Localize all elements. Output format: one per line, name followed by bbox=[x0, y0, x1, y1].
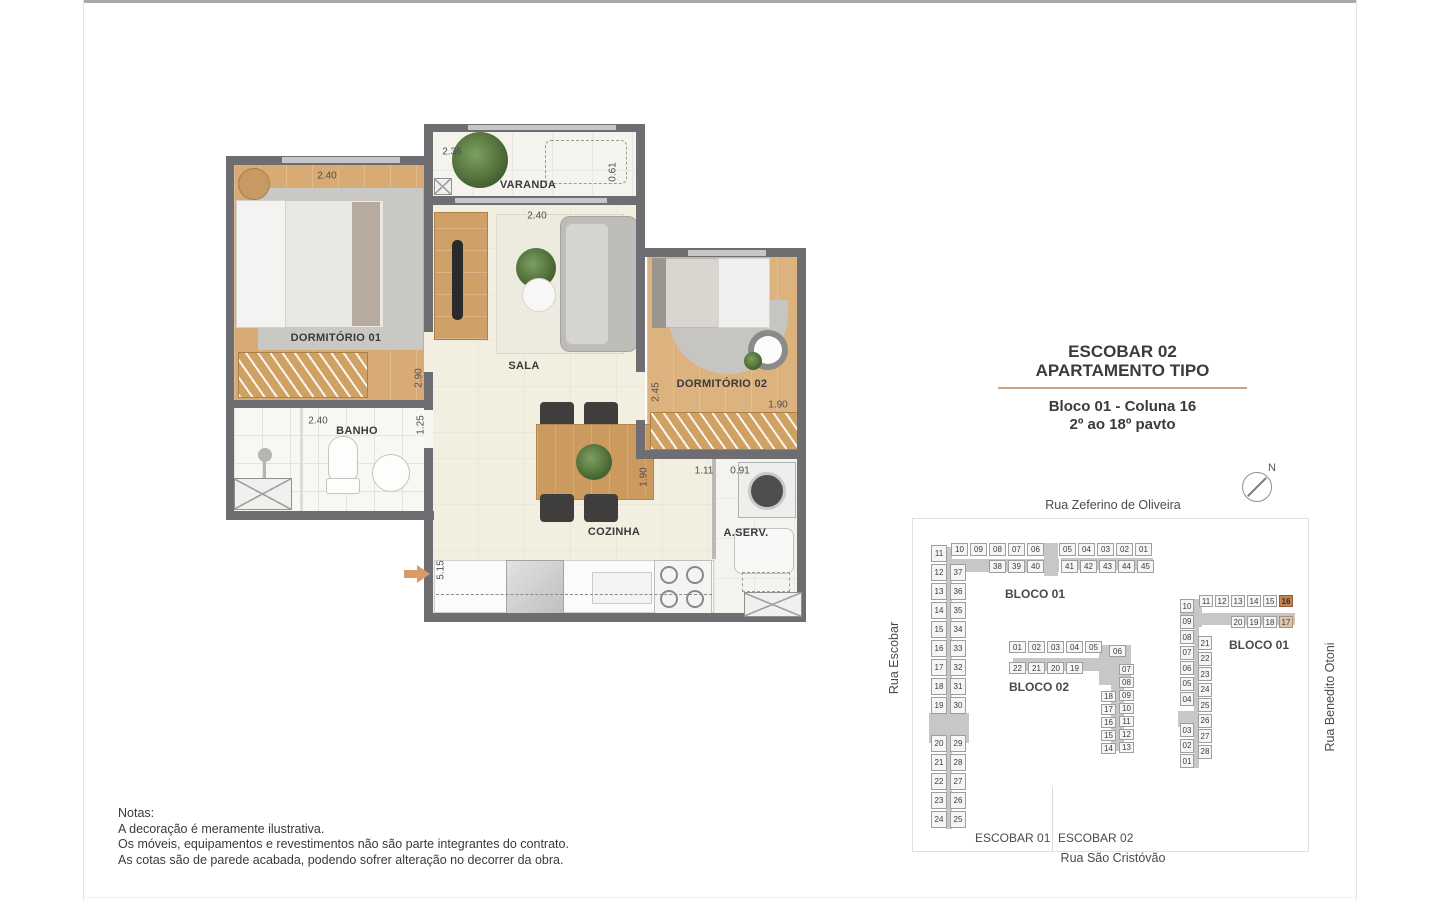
dim-cozinha-width: 1.11 bbox=[695, 466, 714, 477]
unit-20: 20 bbox=[1231, 616, 1245, 628]
dim-dorm2-height: 2.45 bbox=[651, 382, 662, 401]
dim-varanda-depth: 0.61 bbox=[608, 162, 619, 181]
unit-row: 1009080706 bbox=[951, 543, 1044, 556]
unit-24: 24 bbox=[1198, 683, 1212, 697]
unit-14: 14 bbox=[931, 602, 947, 619]
unit-12: 12 bbox=[1215, 595, 1229, 607]
unit-15: 15 bbox=[931, 621, 947, 638]
unit-11: 11 bbox=[931, 545, 947, 562]
unit-30: 30 bbox=[950, 697, 966, 714]
unit-25: 25 bbox=[1198, 698, 1212, 712]
unit-20: 20 bbox=[1047, 662, 1064, 674]
notes-line: Os móveis, equipamentos e revestimentos … bbox=[118, 837, 569, 853]
unit-01: 01 bbox=[1180, 754, 1194, 768]
floors-info: 2º ao 18º pavto bbox=[960, 416, 1285, 434]
dorm2-plant bbox=[744, 352, 762, 370]
unit-41: 41 bbox=[1061, 560, 1078, 573]
shower-divider bbox=[300, 407, 303, 513]
unit-09: 09 bbox=[1180, 615, 1194, 629]
title-block: ESCOBAR 02 APARTAMENTO TIPO Bloco 01 - C… bbox=[960, 342, 1285, 434]
unit-22: 22 bbox=[1009, 662, 1026, 674]
dining-plant bbox=[576, 444, 612, 480]
unit-row: 22212019 bbox=[1009, 662, 1083, 674]
unit-row: 383940 bbox=[989, 560, 1044, 573]
notes-heading: Notas: bbox=[118, 806, 569, 822]
dining-chair-4 bbox=[584, 494, 618, 522]
notes-line: A decoração é meramente ilustrativa. bbox=[118, 822, 569, 838]
unit-03: 03 bbox=[1180, 723, 1194, 737]
unit-09: 09 bbox=[970, 543, 987, 556]
unit-45: 45 bbox=[1137, 560, 1154, 573]
cozinha-label: COZINHA bbox=[588, 526, 640, 538]
unit-20: 20 bbox=[931, 735, 947, 752]
street-left: Rua Escobar bbox=[887, 622, 901, 694]
unit-05: 05 bbox=[1059, 543, 1076, 556]
wall bbox=[226, 156, 234, 520]
unit-07: 07 bbox=[1180, 646, 1194, 660]
unit-03: 03 bbox=[1047, 641, 1064, 653]
kitchen-sink bbox=[592, 572, 652, 604]
unit-31: 31 bbox=[950, 678, 966, 695]
unit-07: 07 bbox=[1119, 664, 1134, 675]
unit-32: 32 bbox=[950, 659, 966, 676]
dorm1-pillows bbox=[236, 200, 286, 328]
shaft-banho bbox=[234, 478, 292, 510]
unit-17: 17 bbox=[1101, 704, 1116, 715]
title-divider bbox=[998, 387, 1247, 389]
unit-row: 0102030405 bbox=[1009, 641, 1102, 653]
unit-19: 19 bbox=[931, 697, 947, 714]
blocoA-label: BLOCO 01 bbox=[1005, 587, 1065, 601]
unit-28: 28 bbox=[950, 754, 966, 771]
unit-column: 07080910111213 bbox=[1119, 664, 1134, 753]
lot-boundary bbox=[1052, 787, 1053, 851]
sala-slider-window bbox=[455, 198, 607, 203]
dim-aserv-width: 0.91 bbox=[730, 466, 749, 477]
unit-17: 17 bbox=[931, 659, 947, 676]
aserv-label: A.SERV. bbox=[724, 527, 769, 539]
unit-06: 06 bbox=[1027, 543, 1044, 556]
unit-23: 23 bbox=[1198, 667, 1212, 681]
sala-label: SALA bbox=[508, 360, 539, 372]
stair-core bbox=[1044, 543, 1058, 576]
dorm1-door-opening bbox=[424, 332, 433, 372]
unit-row: 20191817 bbox=[1231, 616, 1293, 628]
dorm2-window bbox=[688, 250, 766, 256]
dorm1-wardrobe bbox=[238, 352, 368, 398]
unit-16: 16 bbox=[1279, 595, 1293, 607]
unit-14: 14 bbox=[1247, 595, 1261, 607]
entrance-arrow-tip bbox=[417, 565, 430, 583]
dim-dorm1-width: 2.40 bbox=[317, 171, 336, 182]
dorm1-blanket bbox=[352, 202, 380, 326]
aserv-dashed-box bbox=[742, 572, 790, 592]
unit-39: 39 bbox=[1008, 560, 1025, 573]
page: DORMITÓRIO 01 BANHO VARANDA SALA DORMITÓ… bbox=[0, 0, 1440, 900]
varanda-label: VARANDA bbox=[500, 179, 556, 191]
unit-18: 18 bbox=[1101, 691, 1116, 702]
sala-sofa-seats bbox=[566, 224, 608, 344]
unit-08: 08 bbox=[1180, 630, 1194, 644]
unit-04: 04 bbox=[1066, 641, 1083, 653]
unit-row: 4142434445 bbox=[1061, 560, 1154, 573]
unit-09: 09 bbox=[1119, 690, 1134, 701]
dorm2-headfoot bbox=[652, 258, 666, 328]
entrance-arrow bbox=[404, 570, 417, 578]
blocoB-label: BLOCO 02 bbox=[1009, 680, 1069, 694]
dorm1-side-table bbox=[238, 168, 270, 200]
unit-05: 05 bbox=[1180, 677, 1194, 691]
dorm1-window bbox=[282, 157, 400, 163]
unit-21: 21 bbox=[931, 754, 947, 771]
unit-15: 15 bbox=[1263, 595, 1277, 607]
dim-dorm2-width: 1.90 bbox=[768, 400, 787, 411]
unit-14: 14 bbox=[1101, 743, 1116, 754]
dim-dorm1-height: 2.90 bbox=[414, 368, 425, 387]
unit-column: 1112131415161718192021222324 bbox=[931, 545, 947, 828]
unit-column: 1817161514 bbox=[1101, 691, 1116, 754]
unit-04: 04 bbox=[1078, 543, 1095, 556]
unit-42: 42 bbox=[1080, 560, 1097, 573]
unit-10: 10 bbox=[1119, 703, 1134, 714]
dining-chair-3 bbox=[540, 494, 574, 522]
unit-19: 19 bbox=[1247, 616, 1261, 628]
dim-varanda-width: 2.36 bbox=[442, 147, 461, 158]
unit-34: 34 bbox=[950, 621, 966, 638]
unit-26: 26 bbox=[950, 792, 966, 809]
unit-36: 36 bbox=[950, 583, 966, 600]
banho-label: BANHO bbox=[336, 425, 378, 437]
unit-23: 23 bbox=[931, 792, 947, 809]
unit-35: 35 bbox=[950, 602, 966, 619]
kitchen-fridge bbox=[506, 560, 564, 616]
unit-44: 44 bbox=[1118, 560, 1135, 573]
unit-15: 15 bbox=[1101, 730, 1116, 741]
dorm2-wardrobe bbox=[650, 412, 798, 450]
unit-12: 12 bbox=[931, 564, 947, 581]
unit-05: 05 bbox=[1085, 641, 1102, 653]
dim-cozinha-length: 5.15 bbox=[436, 560, 447, 579]
unit-11: 11 bbox=[1119, 716, 1134, 727]
unit-17: 17 bbox=[1279, 616, 1293, 628]
compass-north-label: N bbox=[1268, 462, 1276, 474]
unit-38: 38 bbox=[989, 560, 1006, 573]
unit-column: 2122232425262728 bbox=[1198, 636, 1212, 759]
wall bbox=[226, 400, 430, 408]
unit-08: 08 bbox=[1119, 677, 1134, 688]
dim-banho-width: 2.40 bbox=[308, 416, 327, 427]
unit-02: 02 bbox=[1116, 543, 1133, 556]
stove-burner-4 bbox=[686, 590, 704, 608]
unit-16: 16 bbox=[931, 640, 947, 657]
wall bbox=[226, 511, 434, 520]
unit-18: 18 bbox=[931, 678, 947, 695]
shaft-aserv bbox=[744, 592, 802, 617]
unit-27: 27 bbox=[1198, 729, 1212, 743]
dim-cozinha-height: 1.90 bbox=[639, 467, 650, 486]
unit-row: 06 bbox=[1109, 645, 1126, 657]
unit-28: 28 bbox=[1198, 745, 1212, 759]
unit-13: 13 bbox=[931, 583, 947, 600]
unit-22: 22 bbox=[931, 773, 947, 790]
unit-29: 29 bbox=[950, 735, 966, 752]
unit-33: 33 bbox=[950, 640, 966, 657]
unit-40: 40 bbox=[1027, 560, 1044, 573]
bath-sink bbox=[372, 454, 410, 492]
unit-26: 26 bbox=[1198, 714, 1212, 728]
unit-18: 18 bbox=[1263, 616, 1277, 628]
unit-43: 43 bbox=[1099, 560, 1116, 573]
unit-02: 02 bbox=[1028, 641, 1045, 653]
sala-round-table bbox=[522, 278, 556, 312]
street-top: Rua Zeferino de Oliveira bbox=[1045, 498, 1180, 512]
notes: Notas: A decoração é meramente ilustrati… bbox=[118, 806, 569, 868]
street-right: Rua Benedito Otoni bbox=[1323, 642, 1337, 751]
unit-row: 0504030201 bbox=[1059, 543, 1152, 556]
unit-19: 19 bbox=[1066, 662, 1083, 674]
dim-banho-height: 1.25 bbox=[416, 415, 427, 434]
unit-column: 10090807060504030201 bbox=[1180, 599, 1194, 768]
unit-06: 06 bbox=[1180, 661, 1194, 675]
toilet bbox=[328, 436, 358, 482]
unit-07: 07 bbox=[1008, 543, 1025, 556]
unit-12: 12 bbox=[1119, 729, 1134, 740]
unit-21: 21 bbox=[1198, 636, 1212, 650]
unit-11: 11 bbox=[1199, 595, 1213, 607]
lot-label-escobar01: ESCOBAR 01 bbox=[975, 831, 1050, 845]
unit-01: 01 bbox=[1135, 543, 1152, 556]
unit-25: 25 bbox=[950, 811, 966, 828]
shaft-varanda bbox=[434, 178, 452, 195]
blocoC-label: BLOCO 01 bbox=[1229, 638, 1289, 652]
dorm2-pillow bbox=[718, 258, 770, 328]
unit-10: 10 bbox=[1180, 599, 1194, 613]
unit-03: 03 bbox=[1097, 543, 1114, 556]
lot-label-escobar02: ESCOBAR 02 bbox=[1058, 831, 1133, 845]
unit-13: 13 bbox=[1119, 742, 1134, 753]
street-bottom: Rua São Cristóvão bbox=[1061, 851, 1166, 865]
stove-burner-3 bbox=[660, 590, 678, 608]
notes-line: As cotas são de parede acabada, podendo … bbox=[118, 853, 569, 869]
varanda-parapet bbox=[468, 125, 616, 130]
dorm2-label: DORMITÓRIO 02 bbox=[677, 378, 768, 390]
unit-01: 01 bbox=[1009, 641, 1026, 653]
unit-02: 02 bbox=[1180, 739, 1194, 753]
unit-13: 13 bbox=[1231, 595, 1245, 607]
unit-04: 04 bbox=[1180, 692, 1194, 706]
unit-column: 37363534333231302928272625 bbox=[950, 564, 966, 828]
compass: N bbox=[1240, 462, 1286, 508]
unit-24: 24 bbox=[931, 811, 947, 828]
toilet-tank bbox=[326, 478, 360, 494]
wall bbox=[797, 248, 806, 622]
unit-16: 16 bbox=[1101, 717, 1116, 728]
unit-21: 21 bbox=[1028, 662, 1045, 674]
stove-burner-1 bbox=[660, 566, 678, 584]
unit-22: 22 bbox=[1198, 652, 1212, 666]
block-column-info: Bloco 01 - Coluna 16 bbox=[960, 398, 1285, 416]
project-title: ESCOBAR 02 bbox=[960, 342, 1285, 361]
sala-tv bbox=[452, 240, 463, 320]
wall bbox=[636, 124, 645, 261]
unit-06: 06 bbox=[1109, 645, 1126, 657]
wall bbox=[640, 450, 806, 459]
unit-08: 08 bbox=[989, 543, 1006, 556]
unit-10: 10 bbox=[951, 543, 968, 556]
dim-sala-width: 2.40 bbox=[527, 211, 546, 222]
unit-row: 111213141516 bbox=[1199, 595, 1293, 607]
apartment-type: APARTAMENTO TIPO bbox=[960, 361, 1285, 380]
dorm1-label: DORMITÓRIO 01 bbox=[291, 332, 382, 344]
wall bbox=[636, 252, 645, 372]
washer-drum bbox=[748, 472, 786, 510]
stove-burner-2 bbox=[686, 566, 704, 584]
site-map: 1009080706 0504030201 383940 4142434445 … bbox=[912, 518, 1309, 852]
counter-dashed-line bbox=[436, 594, 712, 595]
unit-27: 27 bbox=[950, 773, 966, 790]
unit-37: 37 bbox=[950, 564, 966, 581]
